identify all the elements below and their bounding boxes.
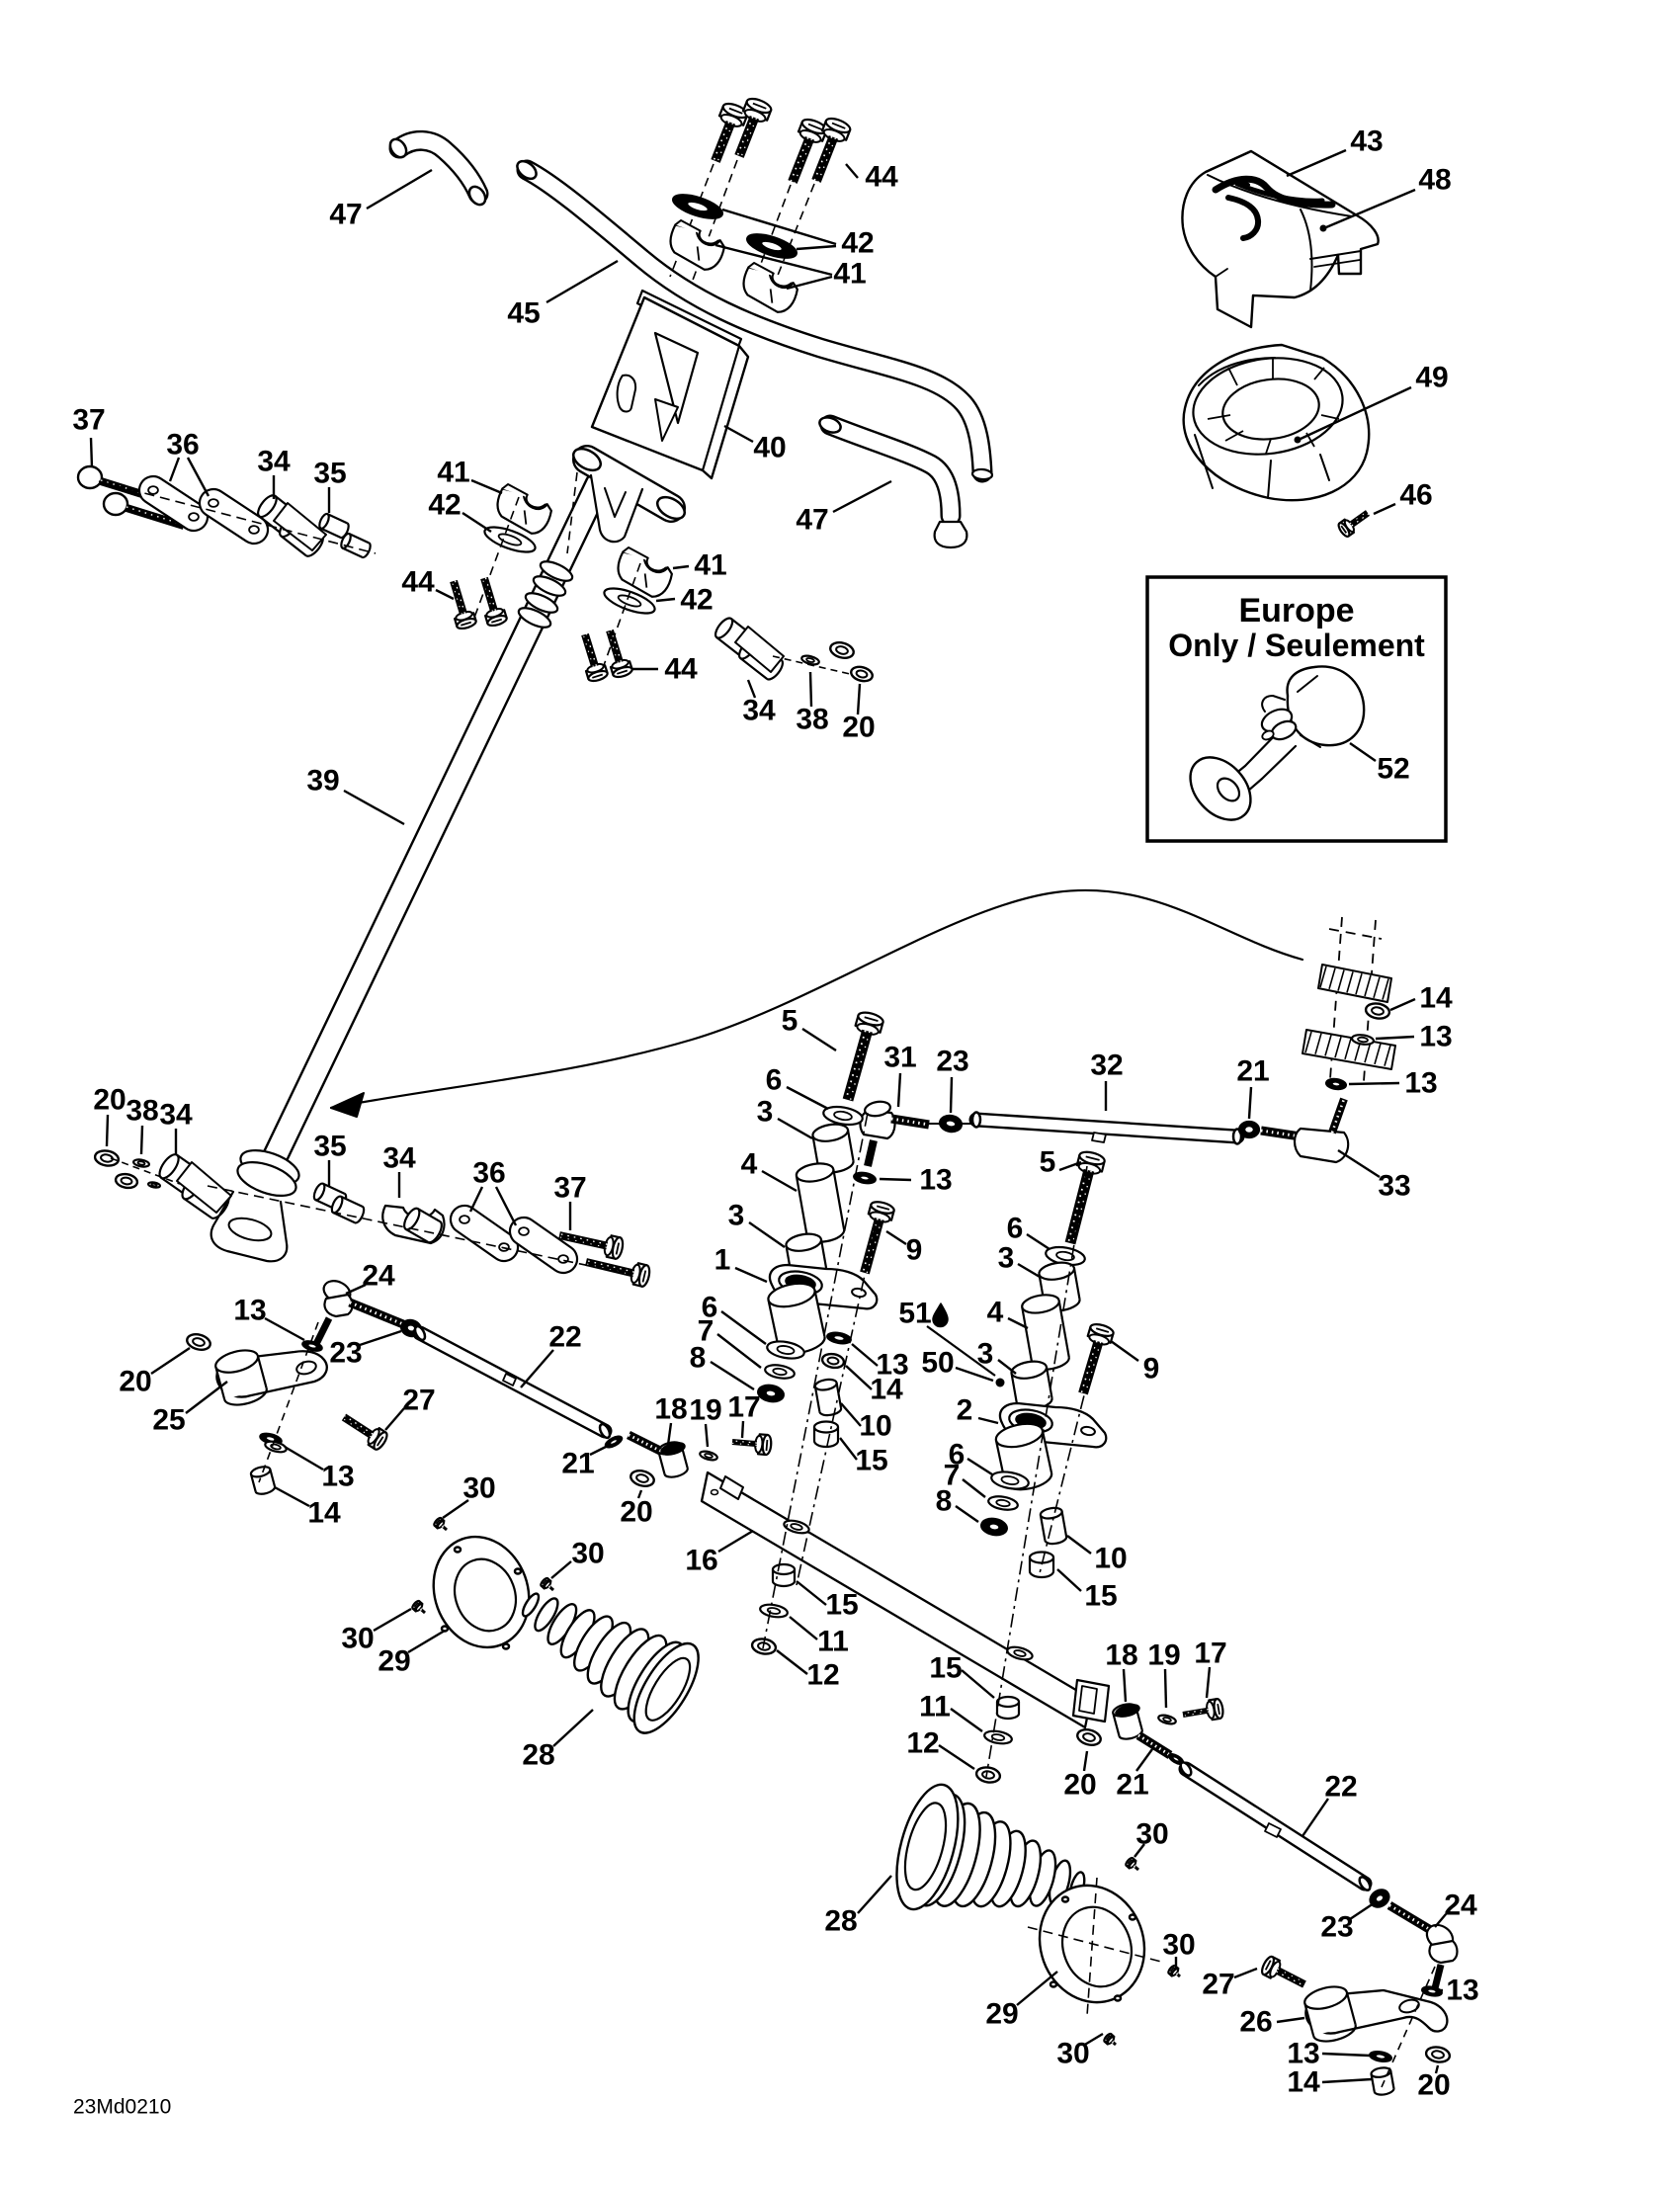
svg-text:20: 20 xyxy=(620,1496,652,1529)
svg-text:52: 52 xyxy=(1377,753,1409,786)
svg-text:30: 30 xyxy=(571,1538,604,1570)
svg-text:33: 33 xyxy=(1378,1170,1410,1203)
svg-text:17: 17 xyxy=(727,1391,760,1424)
svg-text:5: 5 xyxy=(1040,1146,1056,1179)
svg-text:2: 2 xyxy=(957,1394,973,1427)
svg-text:3: 3 xyxy=(757,1096,774,1129)
svg-text:20: 20 xyxy=(93,1084,126,1117)
svg-text:34: 34 xyxy=(257,446,291,478)
svg-text:3: 3 xyxy=(728,1200,745,1232)
svg-text:29: 29 xyxy=(985,1998,1018,2031)
svg-text:8: 8 xyxy=(936,1485,953,1518)
svg-text:11: 11 xyxy=(817,1626,849,1658)
svg-text:42: 42 xyxy=(841,227,874,260)
svg-text:40: 40 xyxy=(753,432,786,464)
svg-text:27: 27 xyxy=(402,1385,435,1417)
svg-text:20: 20 xyxy=(842,712,875,744)
svg-text:19: 19 xyxy=(1147,1639,1180,1672)
svg-text:44: 44 xyxy=(401,566,435,599)
svg-text:38: 38 xyxy=(796,704,828,736)
svg-text:4: 4 xyxy=(741,1148,758,1181)
svg-text:20: 20 xyxy=(119,1366,151,1398)
svg-text:27: 27 xyxy=(1202,1969,1234,2001)
svg-text:Only / Seulement: Only / Seulement xyxy=(1168,628,1425,663)
svg-text:42: 42 xyxy=(680,584,713,617)
svg-text:48: 48 xyxy=(1418,164,1451,197)
svg-text:23: 23 xyxy=(1320,1911,1353,1944)
svg-text:12: 12 xyxy=(906,1727,939,1760)
svg-text:31: 31 xyxy=(883,1042,916,1074)
svg-text:21: 21 xyxy=(1116,1769,1148,1802)
svg-text:5: 5 xyxy=(782,1005,798,1038)
svg-text:46: 46 xyxy=(1399,479,1432,512)
svg-text:30: 30 xyxy=(1162,1929,1195,1962)
svg-text:23: 23 xyxy=(936,1046,968,1078)
svg-text:4: 4 xyxy=(987,1297,1004,1329)
svg-text:22: 22 xyxy=(548,1321,581,1354)
svg-text:51: 51 xyxy=(898,1298,931,1330)
svg-text:47: 47 xyxy=(796,504,828,537)
svg-text:19: 19 xyxy=(689,1394,721,1427)
svg-text:11: 11 xyxy=(919,1691,951,1723)
svg-text:12: 12 xyxy=(806,1659,839,1692)
svg-text:9: 9 xyxy=(906,1234,923,1267)
svg-text:8: 8 xyxy=(690,1342,707,1375)
svg-text:16: 16 xyxy=(685,1545,717,1577)
svg-text:41: 41 xyxy=(437,457,469,489)
svg-text:14: 14 xyxy=(1287,2066,1320,2099)
svg-text:20: 20 xyxy=(1063,1769,1096,1802)
svg-text:34: 34 xyxy=(159,1099,193,1132)
svg-text:15: 15 xyxy=(855,1445,887,1477)
svg-text:24: 24 xyxy=(362,1260,395,1293)
svg-text:30: 30 xyxy=(462,1472,495,1505)
svg-text:9: 9 xyxy=(1143,1353,1160,1386)
svg-text:41: 41 xyxy=(833,258,866,291)
svg-text:15: 15 xyxy=(825,1589,858,1622)
svg-text:37: 37 xyxy=(553,1172,586,1205)
svg-text:28: 28 xyxy=(522,1739,554,1772)
svg-text:13: 13 xyxy=(919,1164,952,1197)
svg-text:38: 38 xyxy=(126,1095,158,1128)
svg-text:23: 23 xyxy=(329,1337,362,1370)
svg-text:44: 44 xyxy=(664,653,698,686)
svg-text:13: 13 xyxy=(1419,1021,1452,1053)
svg-text:28: 28 xyxy=(824,1905,857,1938)
svg-text:18: 18 xyxy=(1105,1639,1137,1672)
svg-text:47: 47 xyxy=(329,199,362,231)
svg-text:42: 42 xyxy=(428,489,461,522)
svg-text:21: 21 xyxy=(561,1448,594,1480)
svg-text:35: 35 xyxy=(313,458,346,490)
svg-text:35: 35 xyxy=(313,1131,346,1163)
svg-text:49: 49 xyxy=(1415,362,1448,394)
svg-text:14: 14 xyxy=(307,1497,341,1530)
svg-text:17: 17 xyxy=(1194,1638,1226,1670)
svg-text:14: 14 xyxy=(1419,982,1453,1015)
svg-text:6: 6 xyxy=(1007,1213,1024,1245)
svg-text:29: 29 xyxy=(378,1645,410,1678)
svg-text:15: 15 xyxy=(1084,1580,1117,1613)
svg-text:1: 1 xyxy=(714,1244,731,1277)
svg-text:34: 34 xyxy=(382,1142,416,1175)
svg-text:3: 3 xyxy=(977,1338,994,1371)
svg-text:13: 13 xyxy=(1446,1975,1478,2007)
svg-text:10: 10 xyxy=(859,1410,891,1443)
svg-text:18: 18 xyxy=(654,1393,687,1426)
svg-text:Europe: Europe xyxy=(1238,592,1354,630)
svg-text:44: 44 xyxy=(865,161,898,194)
svg-text:10: 10 xyxy=(1094,1543,1127,1575)
svg-text:36: 36 xyxy=(472,1157,505,1190)
svg-text:30: 30 xyxy=(1056,2038,1089,2070)
svg-text:26: 26 xyxy=(1239,2006,1272,2039)
svg-text:30: 30 xyxy=(1135,1818,1168,1851)
svg-text:41: 41 xyxy=(694,549,726,582)
svg-text:34: 34 xyxy=(742,695,776,727)
svg-text:43: 43 xyxy=(1350,126,1383,158)
svg-text:22: 22 xyxy=(1324,1771,1357,1804)
svg-text:30: 30 xyxy=(341,1623,374,1655)
svg-text:13: 13 xyxy=(321,1461,354,1493)
svg-text:39: 39 xyxy=(306,765,339,798)
svg-text:32: 32 xyxy=(1090,1050,1123,1082)
svg-text:37: 37 xyxy=(72,404,105,437)
svg-text:50: 50 xyxy=(921,1347,954,1380)
svg-text:45: 45 xyxy=(507,297,540,330)
svg-text:13: 13 xyxy=(1404,1067,1437,1100)
svg-text:6: 6 xyxy=(766,1064,783,1097)
svg-text:23Md0210: 23Md0210 xyxy=(73,2096,171,2119)
svg-text:21: 21 xyxy=(1236,1055,1269,1088)
svg-text:36: 36 xyxy=(166,429,199,462)
svg-text:20: 20 xyxy=(1417,2069,1450,2102)
svg-text:14: 14 xyxy=(870,1374,903,1406)
svg-text:15: 15 xyxy=(929,1652,962,1685)
svg-text:3: 3 xyxy=(998,1242,1015,1275)
svg-text:13: 13 xyxy=(233,1295,266,1327)
svg-text:24: 24 xyxy=(1444,1890,1477,1922)
svg-text:25: 25 xyxy=(152,1404,185,1437)
